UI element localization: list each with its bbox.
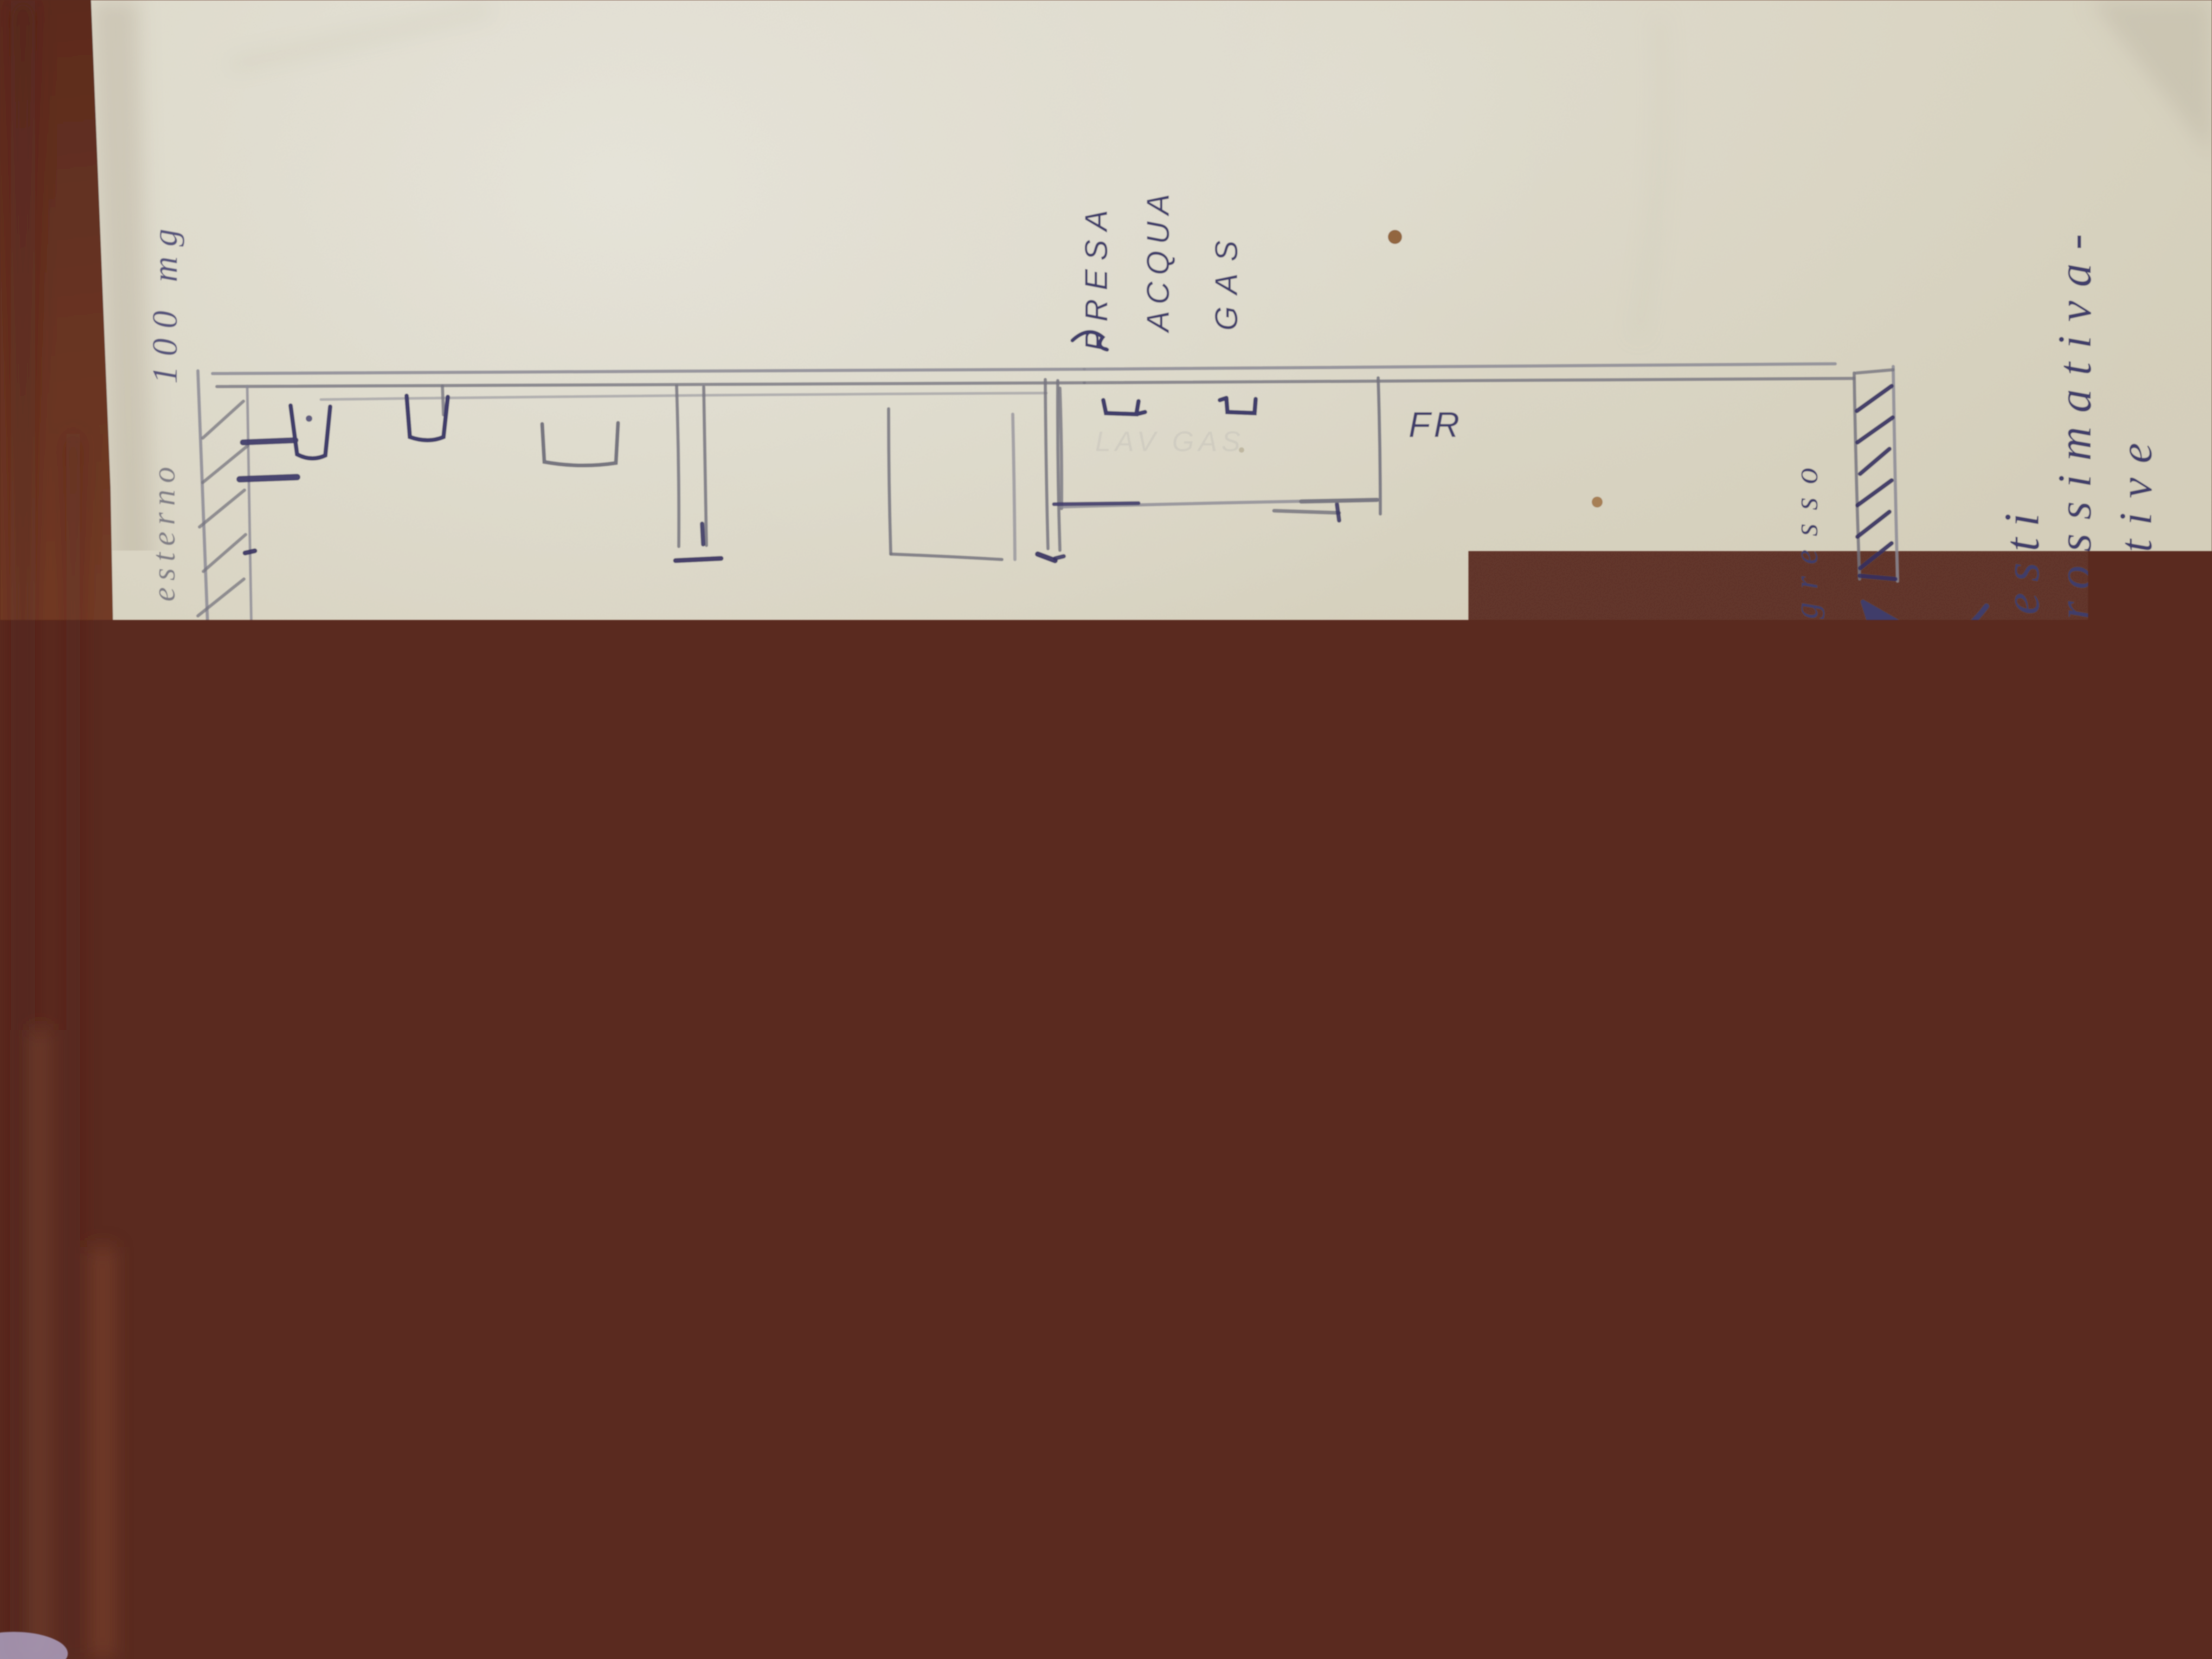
svg-text:finestra: finestra [1914, 1040, 1961, 1230]
svg-text:appartamento: appartamento [1990, 963, 2045, 1321]
svg-text:arredo: arredo [1254, 1060, 1303, 1199]
svg-text:rimosso: rimosso [798, 1203, 831, 1299]
svg-text:va: va [492, 714, 525, 743]
svg-text:letto: letto [645, 1210, 693, 1303]
svg-text:suggerito: suggerito [1316, 1050, 1361, 1206]
svg-text:ingresso: ingresso [1788, 454, 1825, 671]
svg-text:100 mg: 100 mg [145, 219, 185, 384]
svg-text:rimosso: rimosso [722, 1168, 766, 1314]
svg-text:onesti: onesti [1994, 502, 2049, 686]
svg-text:casale: casale [1992, 744, 2047, 895]
svg-text:FR: FR [1409, 404, 1463, 445]
svg-text:PRESA: PRESA [1079, 201, 1114, 351]
svg-text:ACQUA: ACQUA [1141, 188, 1176, 333]
svg-text:-planimetria: -planimetria [2044, 785, 2098, 1192]
svg-text:spazio esterno: spazio esterno [146, 460, 182, 738]
svg-text:misure: misure [2107, 928, 2159, 1053]
svg-text:approssimativa-: approssimativa- [2049, 220, 2101, 732]
svg-text:LAV GAS: LAV GAS [1095, 426, 1245, 458]
svg-text:approssimative: approssimative [2110, 429, 2162, 909]
svg-text:GAS: GAS [1209, 229, 1244, 331]
svg-text:sca: sca [530, 708, 563, 748]
svg-text:Proporzioni: Proporzioni [2105, 1115, 2158, 1344]
